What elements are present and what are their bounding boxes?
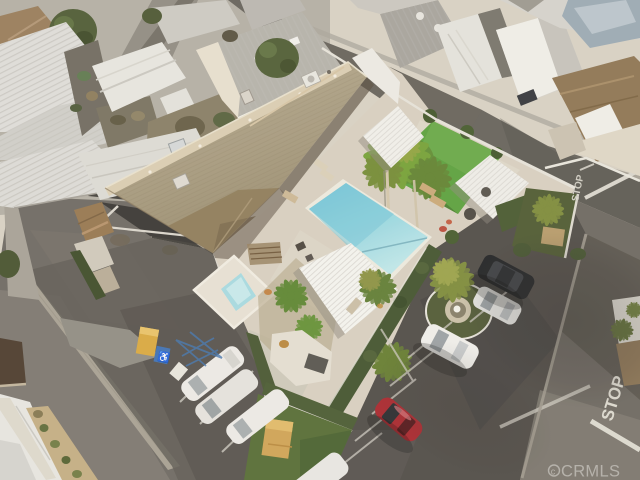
svg-text:CRMLS: CRMLS (561, 463, 620, 480)
svg-text:c: c (551, 467, 556, 477)
